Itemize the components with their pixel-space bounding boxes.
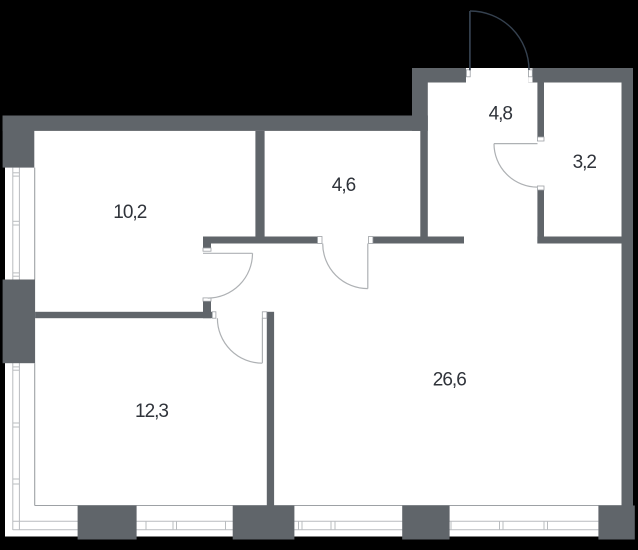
svg-text:4,8: 4,8 <box>489 104 513 125</box>
svg-text:26,6: 26,6 <box>433 369 466 390</box>
svg-text:4,6: 4,6 <box>332 175 356 196</box>
svg-text:10,2: 10,2 <box>113 202 146 223</box>
svg-text:12,3: 12,3 <box>135 401 168 422</box>
svg-text:3,2: 3,2 <box>573 152 597 173</box>
